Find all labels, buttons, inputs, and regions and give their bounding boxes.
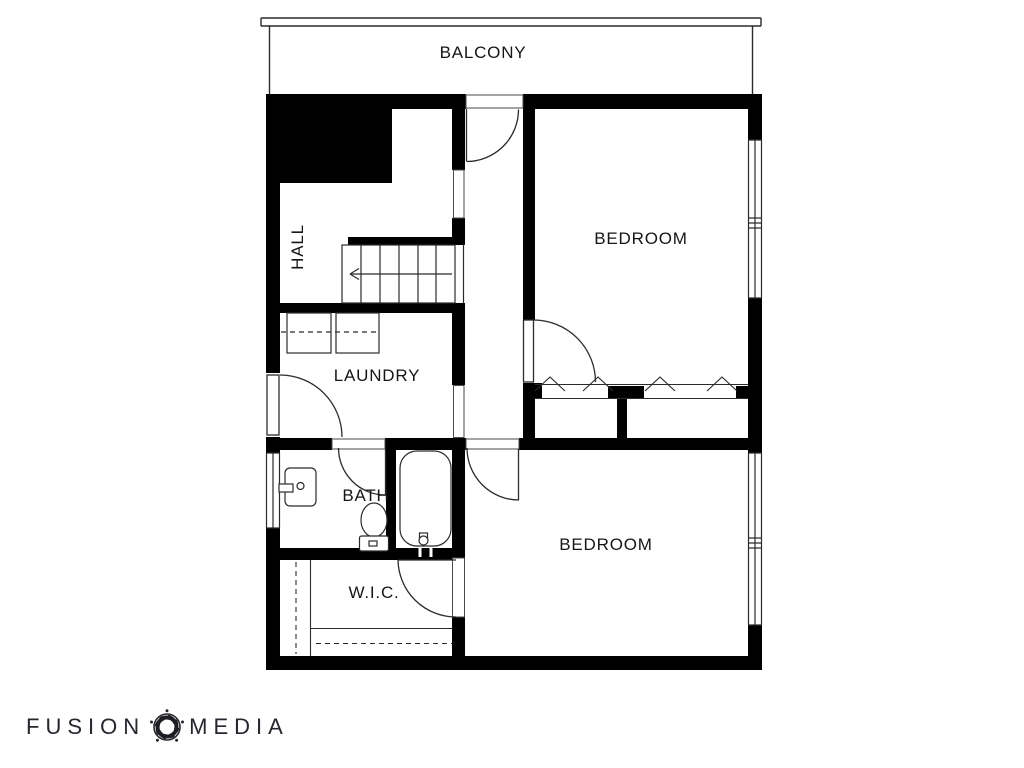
bath-window: [266, 453, 280, 528]
toilet-bowl: [361, 503, 387, 537]
bedroom1-window: [748, 140, 762, 298]
bedroom2-door-arc: [467, 448, 519, 500]
stairs: [342, 245, 464, 303]
stair-top-wall: [348, 237, 453, 245]
room-label-hall: HALL: [288, 224, 308, 270]
dryer: [336, 313, 379, 353]
room-label-laundry: LAUNDRY: [334, 366, 421, 386]
balcony-door-gap: [466, 95, 523, 108]
floor-plan-page: BALCONY BEDROOM HALL LAUNDRY BATH W.I.C.…: [0, 0, 1024, 768]
bedroom1-door-arc: [534, 320, 596, 382]
tub-faucet-knob: [419, 536, 428, 545]
closet-divider-wall: [617, 399, 627, 440]
corridor-bedroom1-wall-upper: [523, 109, 535, 320]
bath-east-wall: [452, 448, 465, 560]
bedroom2-window: [748, 453, 762, 625]
bath-door-gap: [332, 439, 385, 449]
room-label-balcony: BALCONY: [440, 43, 527, 63]
room-label-bedroom-2: BEDROOM: [559, 535, 652, 555]
wic-door-gap: [453, 558, 465, 617]
toilet-flush-button: [369, 541, 377, 546]
floor-plan-drawing: [0, 0, 1024, 768]
logo-word-media: MEDIA: [189, 714, 289, 740]
wall-right-upper: [748, 94, 762, 140]
laundry-entry-door-leaf: [267, 375, 279, 435]
camera-aperture-icon: [149, 709, 185, 745]
closet-jamb-mid: [608, 386, 644, 399]
room-label-bedroom-1: BEDROOM: [594, 229, 687, 249]
solid-black-mass: [266, 94, 392, 183]
wall-right-mid: [748, 298, 762, 453]
sink-drain: [297, 483, 304, 490]
divider-wall-left: [280, 438, 332, 450]
laundry-east-wall: [452, 313, 465, 385]
laundry-corridor-opening: [454, 386, 465, 438]
wic-wardrobe: [296, 560, 452, 656]
logo-word-fusion: FUSION: [26, 714, 145, 740]
fusion-media-logo: FUSION MEDIA: [26, 709, 289, 745]
laundry-entry-door-arc: [280, 375, 342, 437]
hall-east-wall-mid: [452, 218, 465, 245]
room-label-wic: W.I.C.: [348, 583, 399, 603]
bedroom2-door-gap: [466, 439, 519, 449]
stair-bottom-wall: [280, 303, 465, 313]
sink-faucet: [279, 484, 293, 492]
hall-east-wall-upper: [452, 109, 465, 170]
washer: [287, 313, 331, 353]
wic-east-wall: [452, 617, 465, 656]
hall-corridor-opening: [454, 170, 465, 218]
wall-left-mid: [266, 437, 280, 453]
bedroom1-door-leaf: [524, 320, 534, 382]
balcony-door-arc: [467, 110, 519, 162]
closet-jamb-left: [523, 383, 542, 399]
bathtub: [400, 451, 451, 546]
divider-wall-right: [519, 438, 762, 450]
room-label-bath: BATH: [342, 486, 389, 506]
wic-door-arc: [398, 560, 456, 617]
closet-jamb-right: [736, 386, 748, 399]
wall-top-right: [523, 94, 762, 109]
tub-faucet-base: [413, 548, 438, 557]
wall-bottom: [266, 656, 762, 670]
